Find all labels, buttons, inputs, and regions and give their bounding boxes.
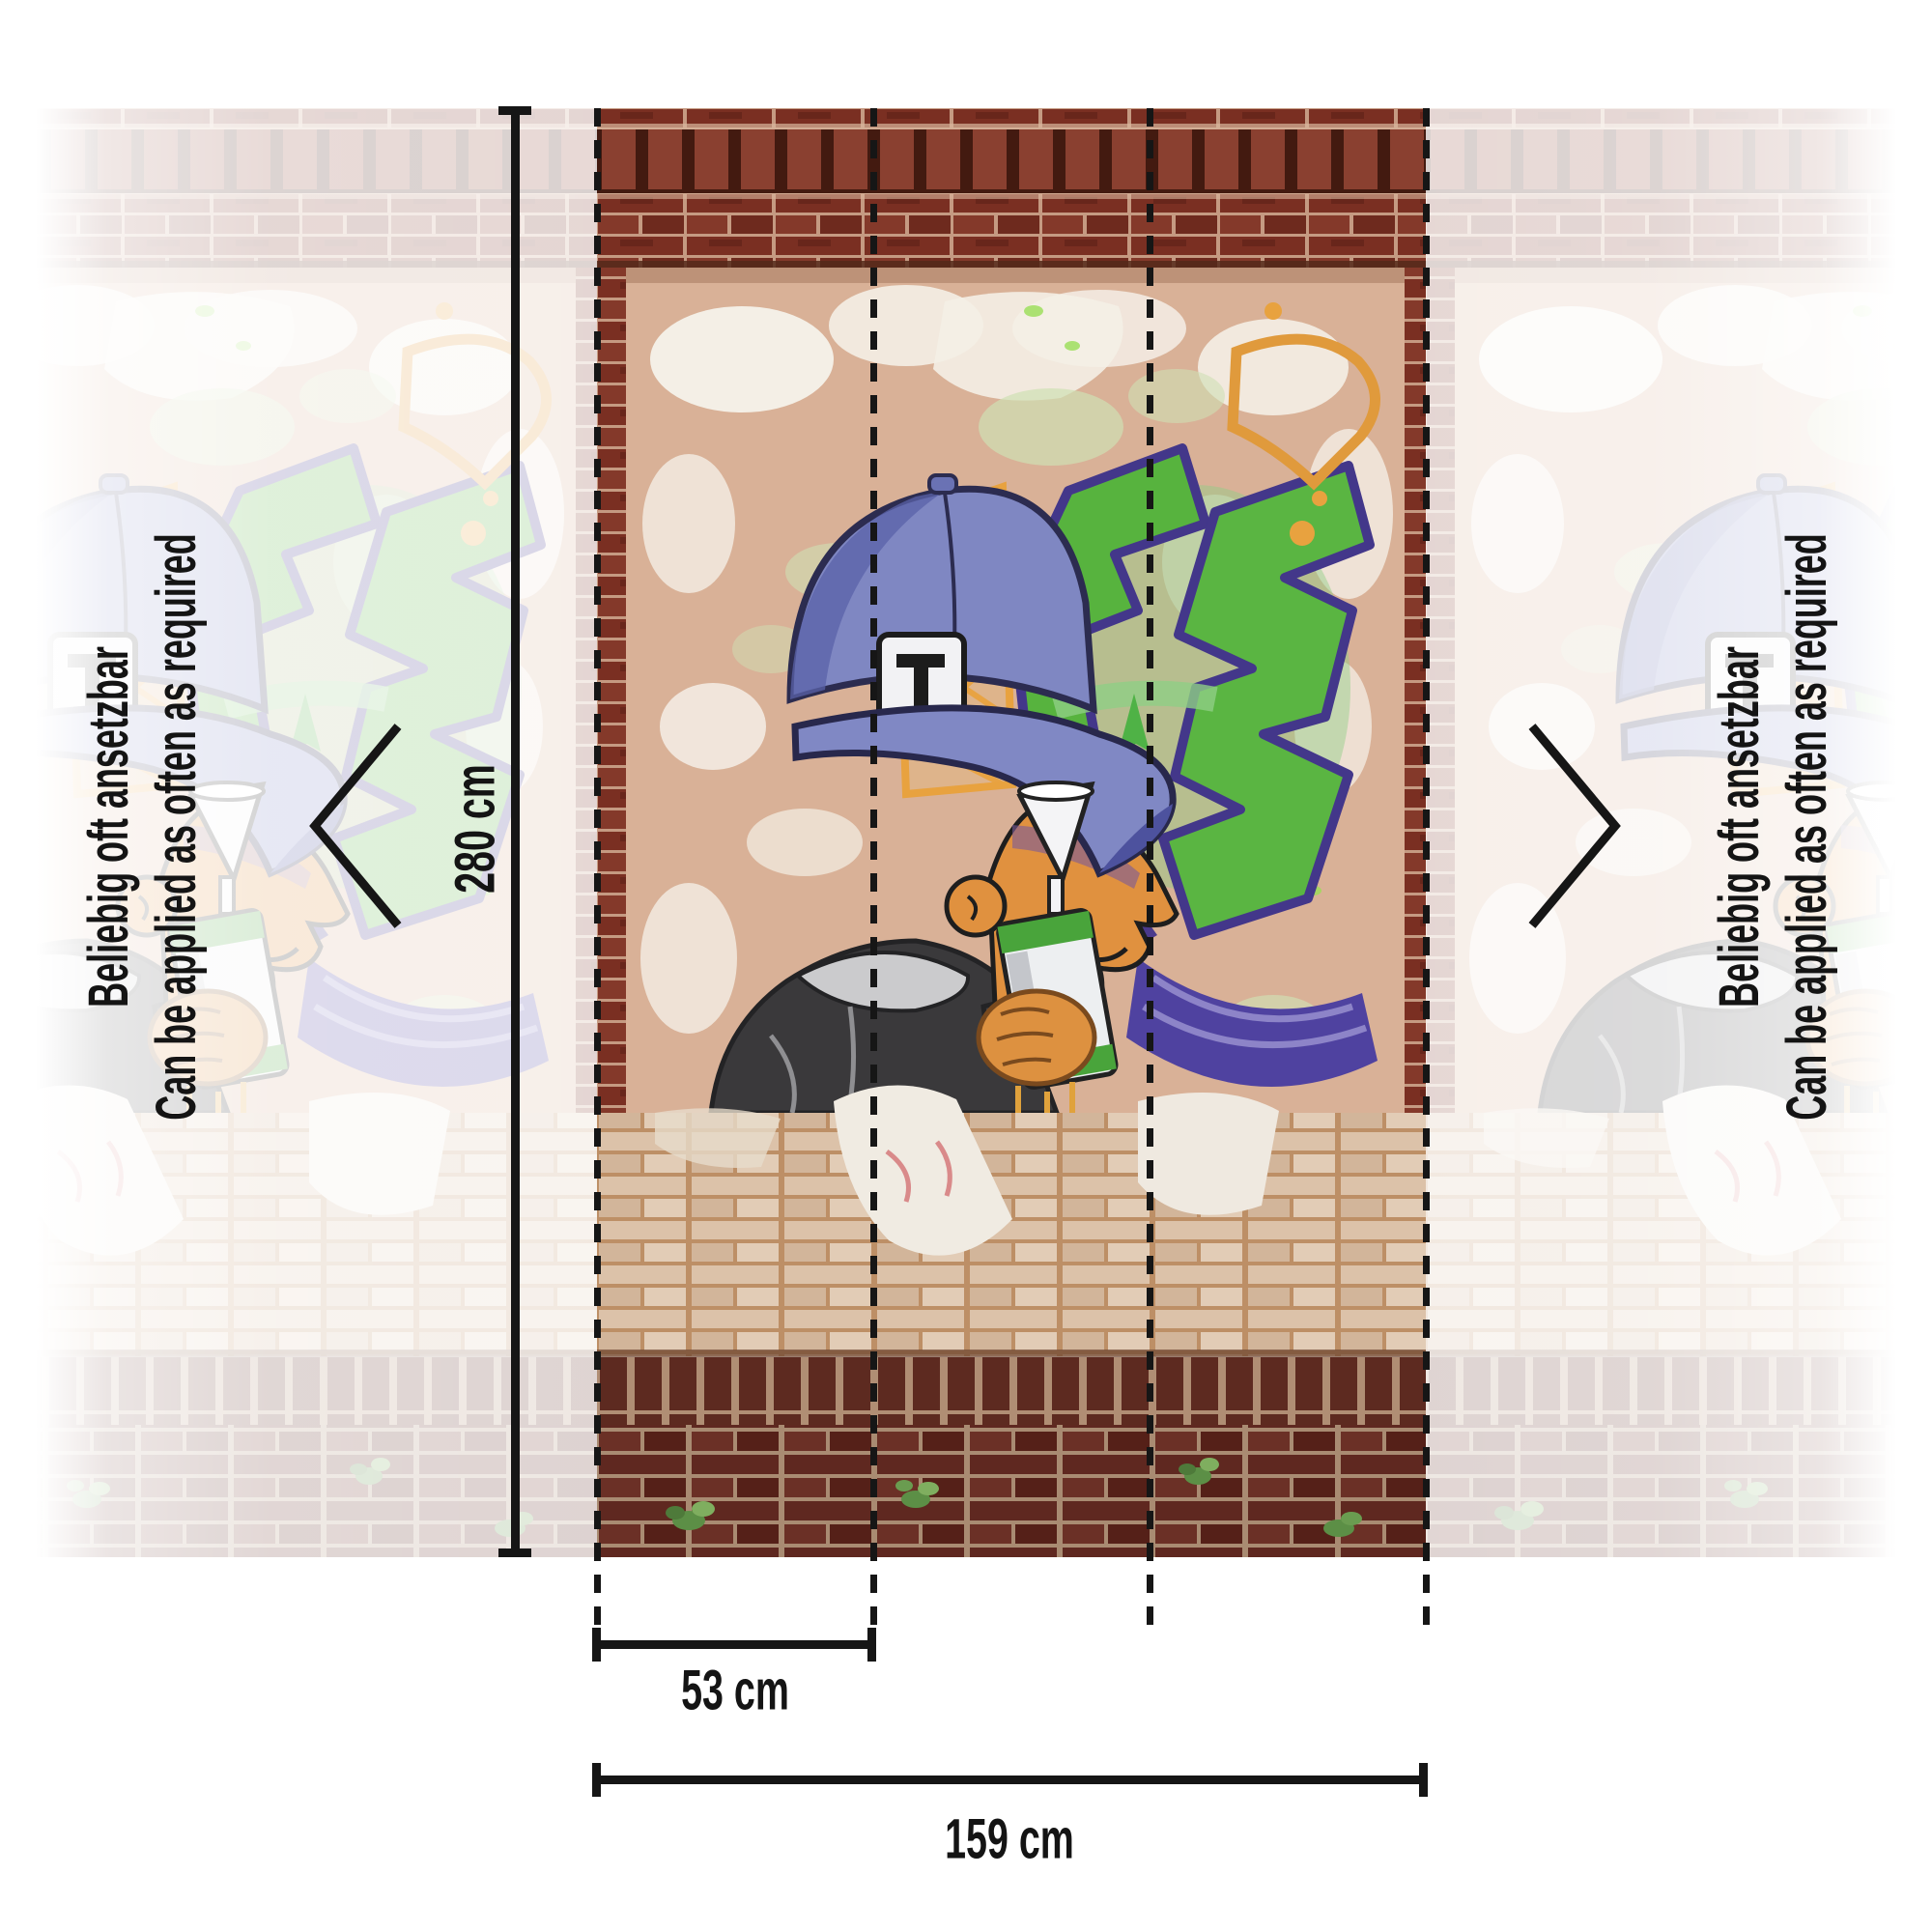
side-note-left-line-de: Beliebig oft ansetzbar [75, 533, 143, 1120]
height-dimension-cap-top [498, 106, 531, 115]
chevron-right-icon [1524, 719, 1625, 933]
total-width-cap-left [592, 1763, 601, 1797]
panel-width-dimension-line [597, 1640, 875, 1649]
seam-dashed-line-2 [870, 108, 877, 1634]
height-dimension-line [511, 108, 520, 1557]
panel-width-cap-left [592, 1628, 601, 1662]
total-width-cap-right [1419, 1763, 1428, 1797]
side-note-left-line-en: Can be applied as often as required [143, 533, 211, 1120]
seam-dashed-line-3 [1147, 108, 1153, 1634]
wallpaper-mural-photo [0, 108, 1932, 1557]
side-note-right: Beliebig oft ansetzbar Can be applied as… [1706, 533, 1841, 1120]
total-width-dimension-line [597, 1776, 1424, 1784]
panel-width-cap-right [867, 1628, 876, 1662]
height-dimension-cap-bottom [498, 1548, 531, 1557]
mural-tile-right-repeat [1426, 108, 1932, 1557]
wallpaper-product-diagram: 280 cm 53 cm 159 cm Beliebig oft ansetzb… [0, 0, 1932, 1932]
mural-tile-center [597, 108, 1426, 1557]
chevron-left-icon [305, 719, 406, 933]
seam-dashed-line-4 [1423, 108, 1430, 1634]
side-note-right-line-de: Beliebig oft ansetzbar [1706, 533, 1774, 1120]
panel-width-dimension-label: 53 cm [681, 1659, 789, 1723]
height-dimension-label: 280 cm [443, 764, 508, 894]
seam-dashed-line-1 [594, 108, 601, 1634]
side-note-left: Beliebig oft ansetzbar Can be applied as… [75, 533, 211, 1120]
total-width-dimension-label: 159 cm [945, 1807, 1074, 1872]
side-note-right-line-en: Can be applied as often as required [1774, 533, 1841, 1120]
